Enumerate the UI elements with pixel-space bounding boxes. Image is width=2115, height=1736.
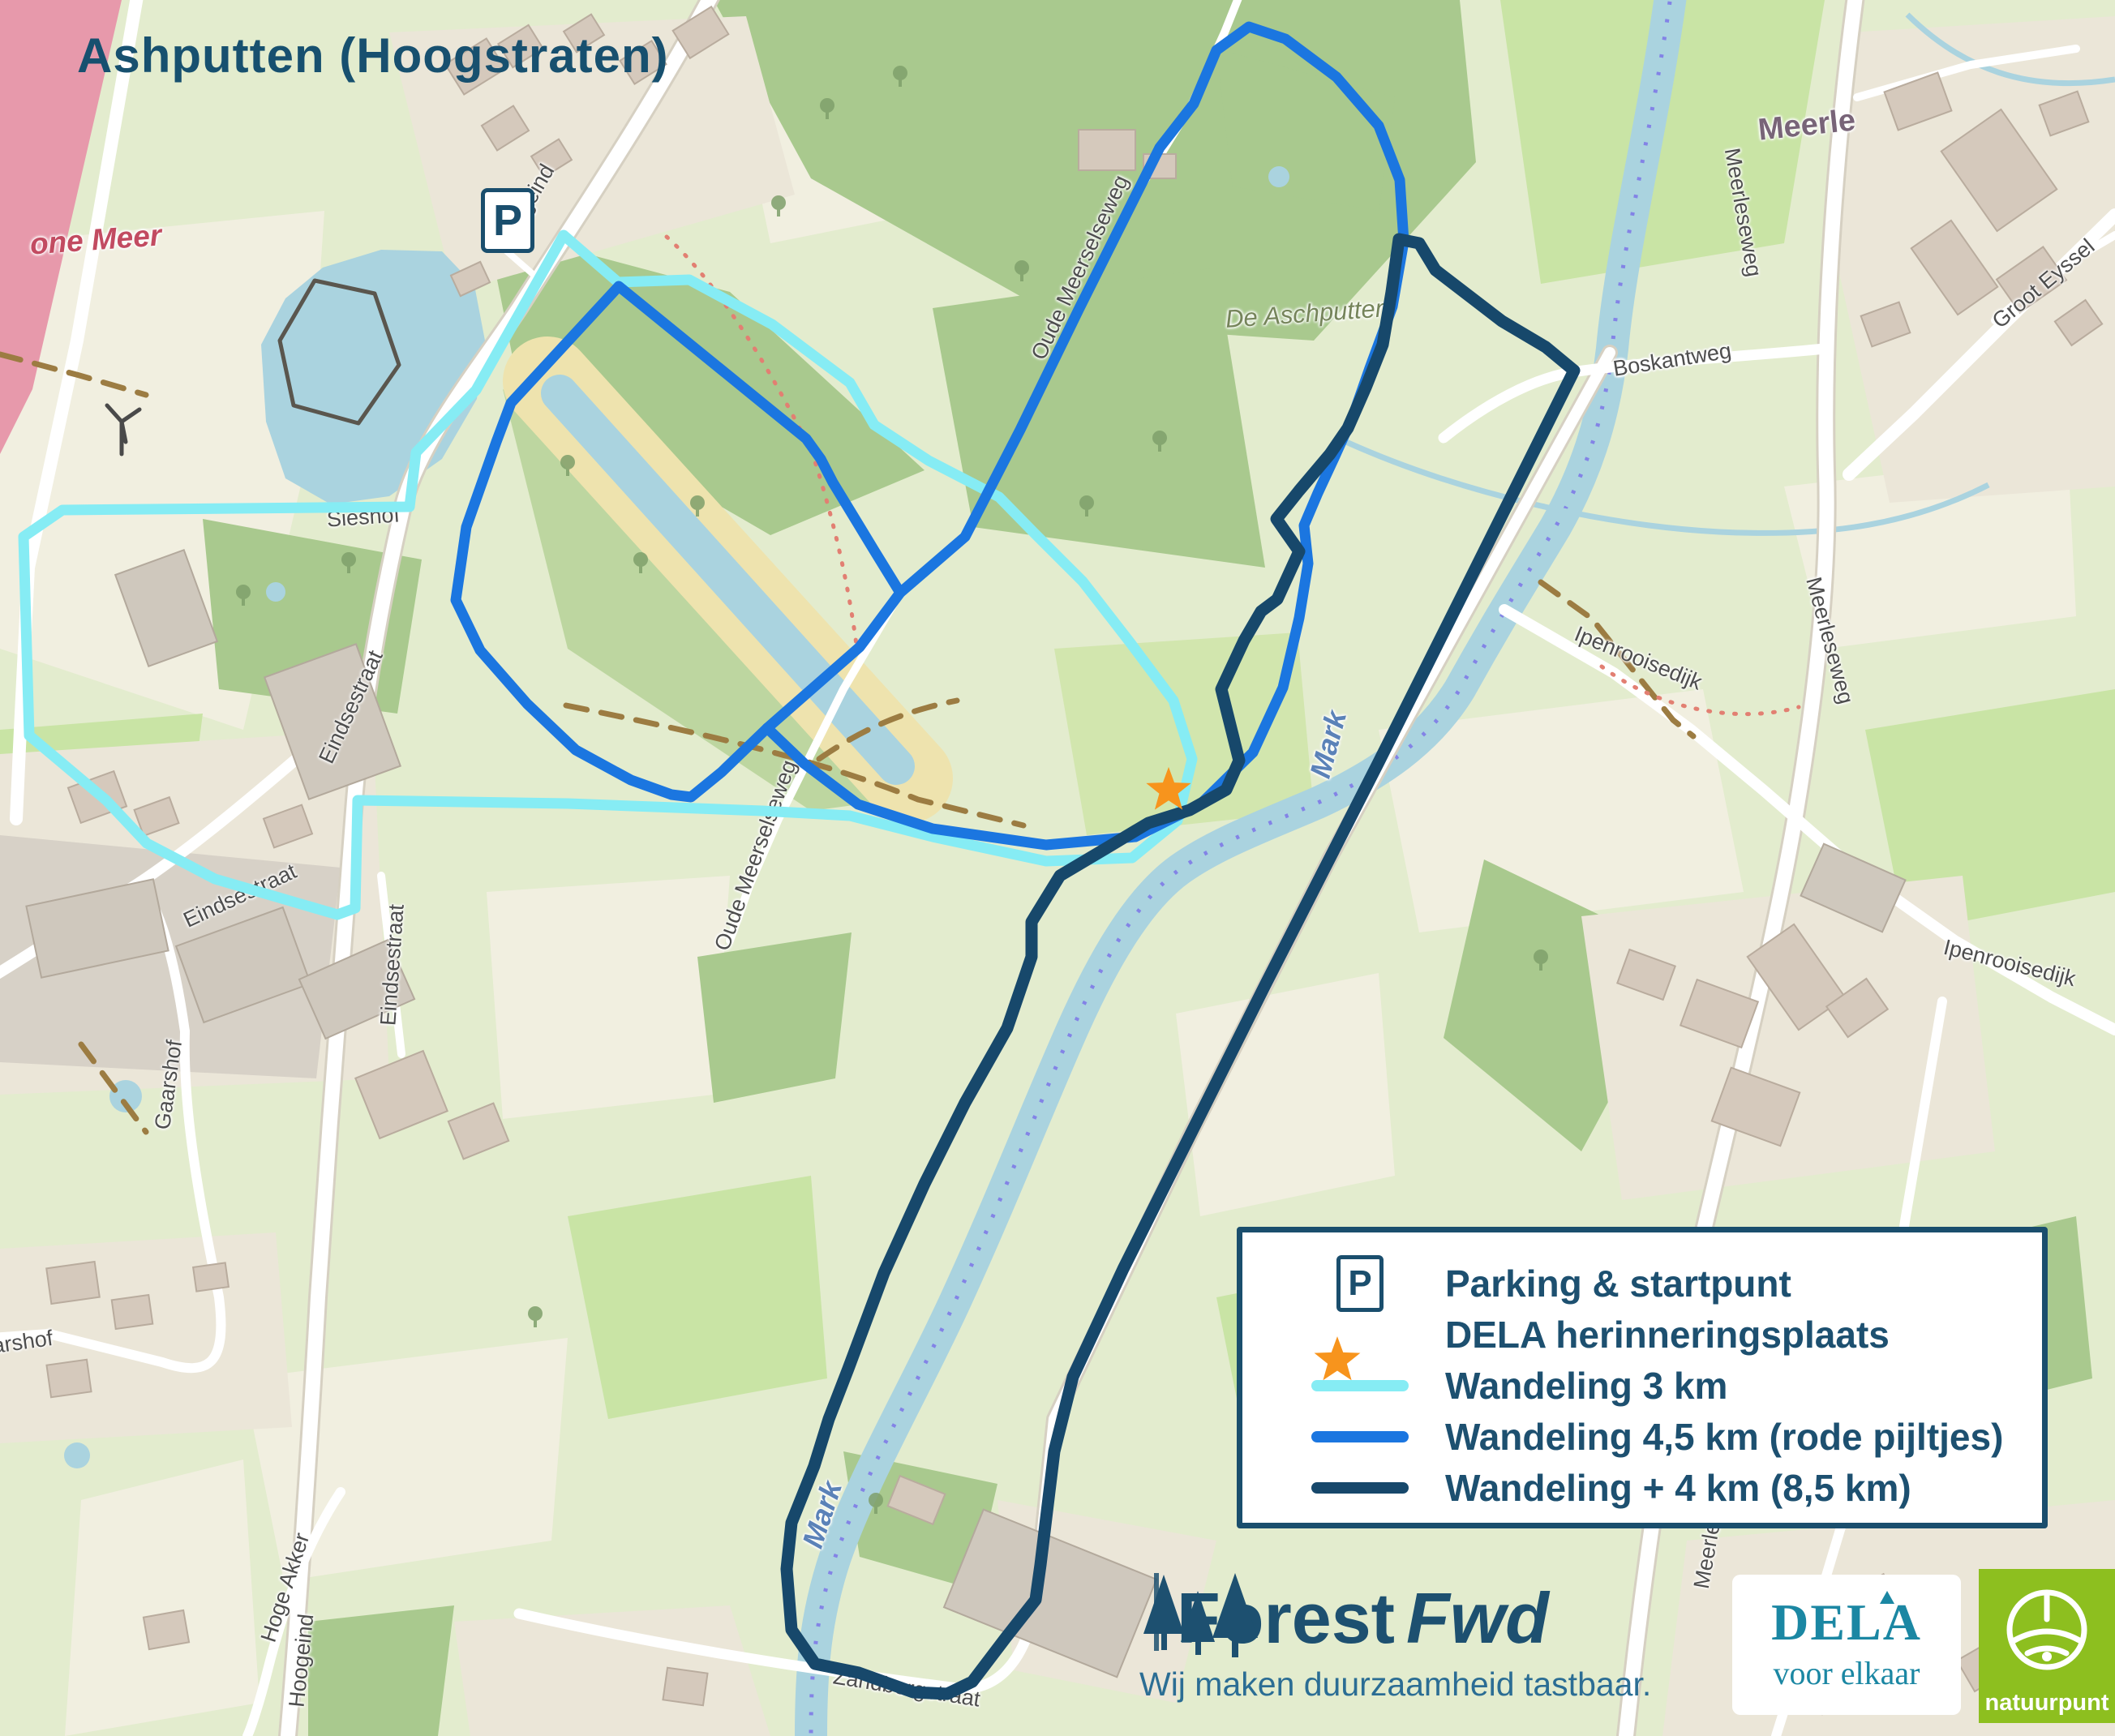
star-marker-icon	[1140, 762, 1197, 819]
legend-item: Wandeling + 4 km (8,5 km)	[1242, 1463, 2042, 1513]
legend-label: Parking & startpunt	[1445, 1262, 1791, 1305]
legend-item: PParking & startpunt	[1242, 1258, 2042, 1309]
forestfwd-trees-icon	[1139, 1573, 1269, 1670]
legend-label: DELA herinneringsplaats	[1445, 1313, 1890, 1357]
natuurpunt-logo: natuurpunt	[1979, 1569, 2115, 1723]
dela-name-text: DELA	[1771, 1593, 1922, 1651]
forestfwd-tagline: Wij maken duurzaamheid tastbaar.	[1139, 1665, 1651, 1704]
route-color-swatch	[1311, 1431, 1409, 1442]
forestfwd-divider	[1154, 1573, 1159, 1651]
legend-label: Wandeling + 4 km (8,5 km)	[1445, 1466, 1911, 1510]
legend-label: Wandeling 3 km	[1445, 1364, 1727, 1408]
dela-subline: voor elkaar	[1732, 1654, 1961, 1692]
dela-wordmark: DELA	[1771, 1592, 1922, 1652]
route-color-swatch	[1311, 1380, 1409, 1391]
forestfwd-word2: Fwd	[1406, 1578, 1549, 1658]
legend-item: DELA herinneringsplaats	[1242, 1310, 2042, 1360]
legend-parking-icon: P	[1311, 1255, 1409, 1312]
legend-item: Wandeling 3 km	[1242, 1361, 2042, 1411]
parking-icon: P	[1336, 1255, 1384, 1312]
legend-line-swatch	[1311, 1482, 1409, 1494]
legend-line-swatch	[1311, 1380, 1409, 1391]
page-title: Ashputten (Hoogstraten)	[77, 28, 669, 84]
legend: PParking & startpuntDELA herinneringspla…	[1237, 1227, 2048, 1528]
route-color-swatch	[1311, 1482, 1409, 1494]
legend-item: Wandeling 4,5 km (rode pijltjes)	[1242, 1412, 2042, 1462]
map-canvas[interactable]: MeerleMeerlesewegGroot EysselBoskantwegM…	[0, 0, 2115, 1736]
legend-label: Wandeling 4,5 km (rode pijltjes)	[1445, 1415, 2003, 1459]
route-wandeling-45km-east-loop	[767, 27, 1404, 845]
forestfwd-logo: ForestFwd Wij maken duurzaamheid tastbaa…	[1139, 1573, 1651, 1704]
route-power-area-pentagon	[280, 281, 399, 423]
dela-accent-icon	[1880, 1591, 1894, 1604]
parking-marker-icon: P	[481, 188, 534, 253]
route-wandeling-45km-lake-loop	[456, 286, 900, 797]
natuurpunt-bird-icon	[1979, 1569, 2115, 1691]
legend-line-swatch	[1311, 1431, 1409, 1442]
natuurpunt-name: natuurpunt	[1979, 1690, 2115, 1717]
route-wandeling-3km	[24, 235, 1192, 915]
dela-logo: DELA voor elkaar	[1732, 1575, 1961, 1715]
